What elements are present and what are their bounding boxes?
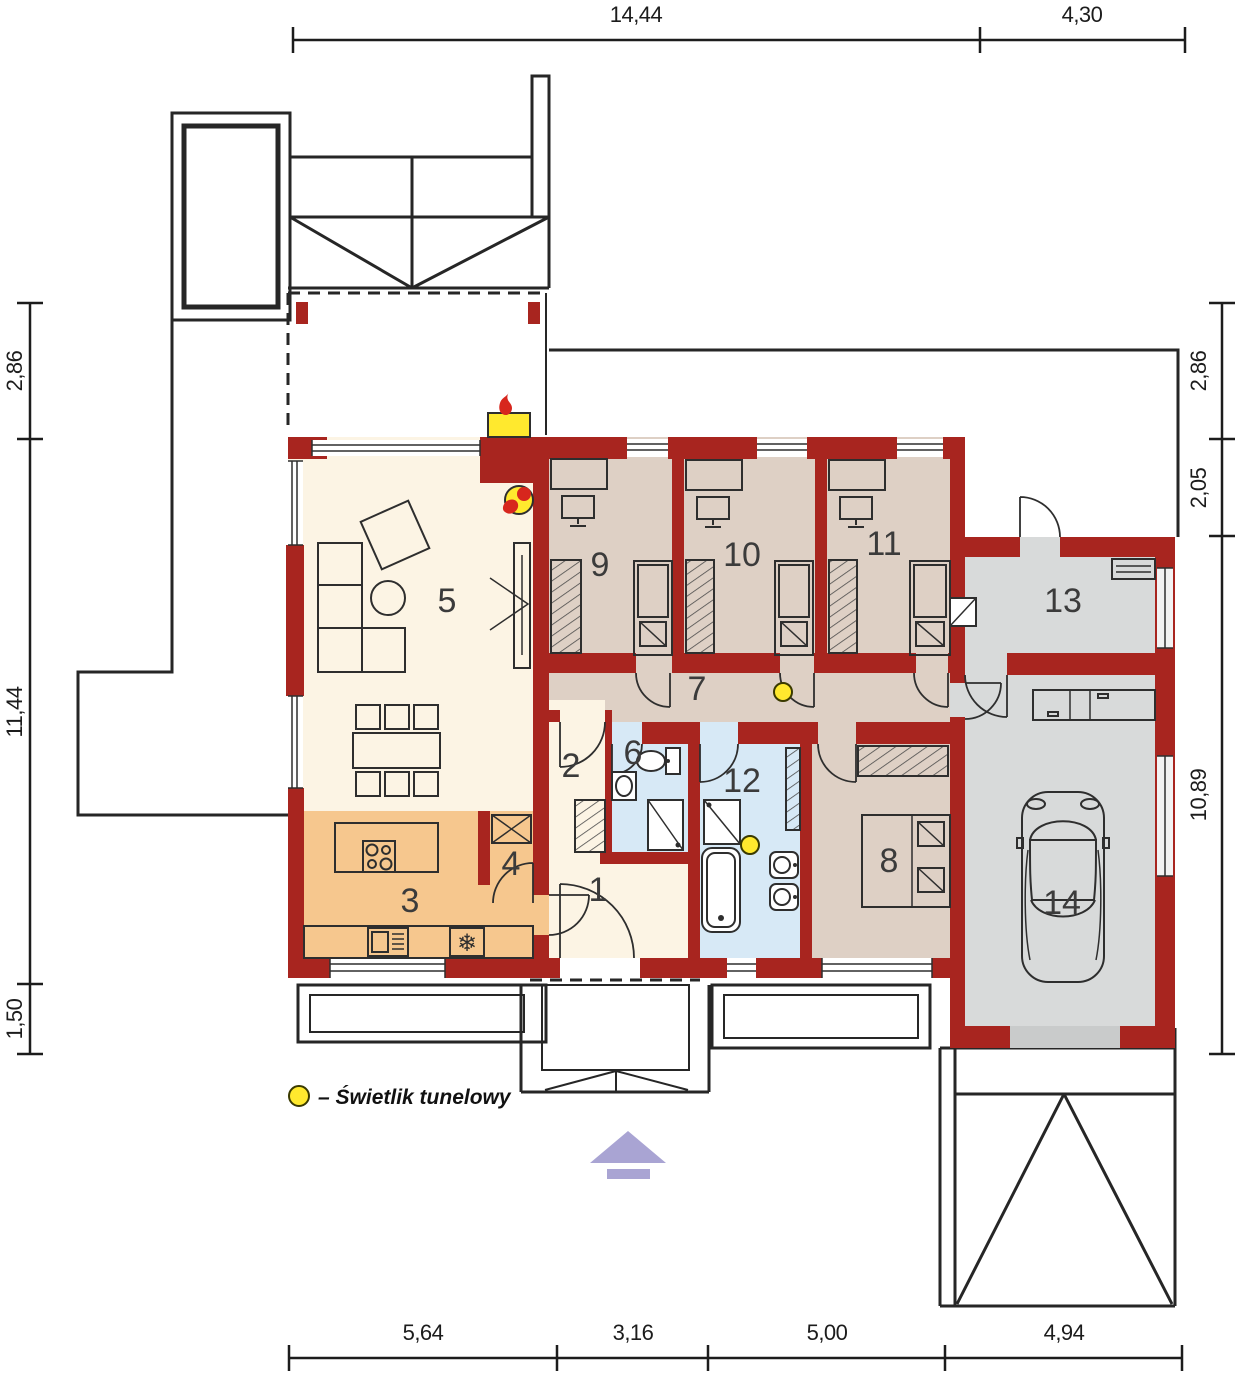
sink-icon [770, 884, 798, 910]
dim-left: 2,86 11,44 1,50 [2, 303, 43, 1054]
entrance-porch [521, 980, 709, 1092]
skylight-icon [741, 836, 759, 854]
window [330, 958, 445, 978]
entrance-arrow-icon [590, 1131, 666, 1179]
window [627, 439, 668, 457]
room-label-10: 10 [723, 536, 761, 574]
terrace-post [296, 302, 308, 324]
flame-icon [499, 392, 512, 415]
wardrobe [551, 560, 581, 653]
terrace-post [528, 302, 540, 324]
dim-label: 4,30 [1062, 2, 1103, 27]
window [1157, 568, 1173, 648]
room-label-3: 3 [401, 882, 420, 920]
room-label-12: 12 [723, 762, 761, 800]
dim-label: 5,00 [807, 1320, 848, 1345]
dim-label: 3,16 [613, 1320, 654, 1345]
room-label-5: 5 [438, 582, 457, 620]
dim-label: 4,94 [1044, 1320, 1085, 1345]
wardrobe [686, 560, 714, 653]
room-label-2: 2 [562, 747, 581, 785]
terrace-south-right [712, 985, 930, 1048]
room-label-4: 4 [502, 845, 521, 883]
dim-label: 14,44 [610, 2, 663, 27]
plot-boundary-left [78, 320, 288, 815]
legend: – Świetlik tunelowy [289, 1085, 512, 1109]
shower-icon [648, 800, 683, 850]
sink-icon [612, 772, 636, 800]
window [312, 440, 480, 456]
wardrobe [786, 748, 800, 830]
floor-plan-page: ❄ [0, 0, 1252, 1385]
dim-top: 14,44 4,30 [293, 2, 1185, 53]
bathtub-icon [702, 848, 740, 932]
window [897, 439, 943, 457]
dim-label: 2,05 [1186, 467, 1211, 508]
wardrobe [829, 560, 857, 653]
carport [940, 1028, 1175, 1306]
room-label-6: 6 [624, 734, 643, 772]
window [288, 461, 303, 545]
window [822, 958, 932, 978]
room-label-7: 7 [688, 670, 707, 708]
room-label-9: 9 [591, 546, 610, 584]
room-label-14: 14 [1043, 884, 1081, 922]
dim-label: 10,89 [1186, 768, 1211, 821]
sink-icon [770, 852, 798, 878]
fireplace-icon [488, 392, 530, 437]
window [727, 958, 756, 978]
dim-label: 5,64 [403, 1320, 444, 1345]
legend-skylight-icon [289, 1086, 309, 1106]
window [1157, 756, 1173, 876]
vent-box [950, 598, 976, 626]
dim-label: 11,44 [2, 686, 27, 737]
door-arc [1020, 497, 1060, 537]
dim-right: 2,86 2,05 10,89 [1186, 303, 1235, 1054]
skylight-icon [774, 683, 792, 701]
garage-door [1010, 1026, 1120, 1048]
legend-label: – Świetlik tunelowy [318, 1085, 512, 1109]
storage-building [172, 113, 290, 320]
snowflake-icon: ❄ [457, 930, 477, 957]
dim-label: 2,86 [1186, 350, 1211, 391]
wardrobe [575, 800, 605, 852]
room-label-8: 8 [880, 842, 899, 880]
window [288, 696, 303, 788]
dim-bottom: 5,64 3,16 5,00 4,94 [289, 1320, 1182, 1371]
window [757, 439, 807, 457]
room-label-11: 11 [866, 525, 901, 563]
room-label-1: 1 [589, 871, 608, 909]
room-label-13: 13 [1044, 582, 1082, 620]
chimney [532, 76, 549, 217]
wardrobe [858, 746, 948, 776]
floor-plan-drawing: ❄ [0, 0, 1252, 1385]
terrace-south-left [298, 985, 546, 1042]
toilet-icon [637, 748, 680, 774]
entry-canopy [288, 76, 549, 288]
dim-label: 2,86 [2, 350, 27, 391]
shower-icon [704, 800, 740, 844]
dim-label: 1,50 [2, 998, 27, 1039]
